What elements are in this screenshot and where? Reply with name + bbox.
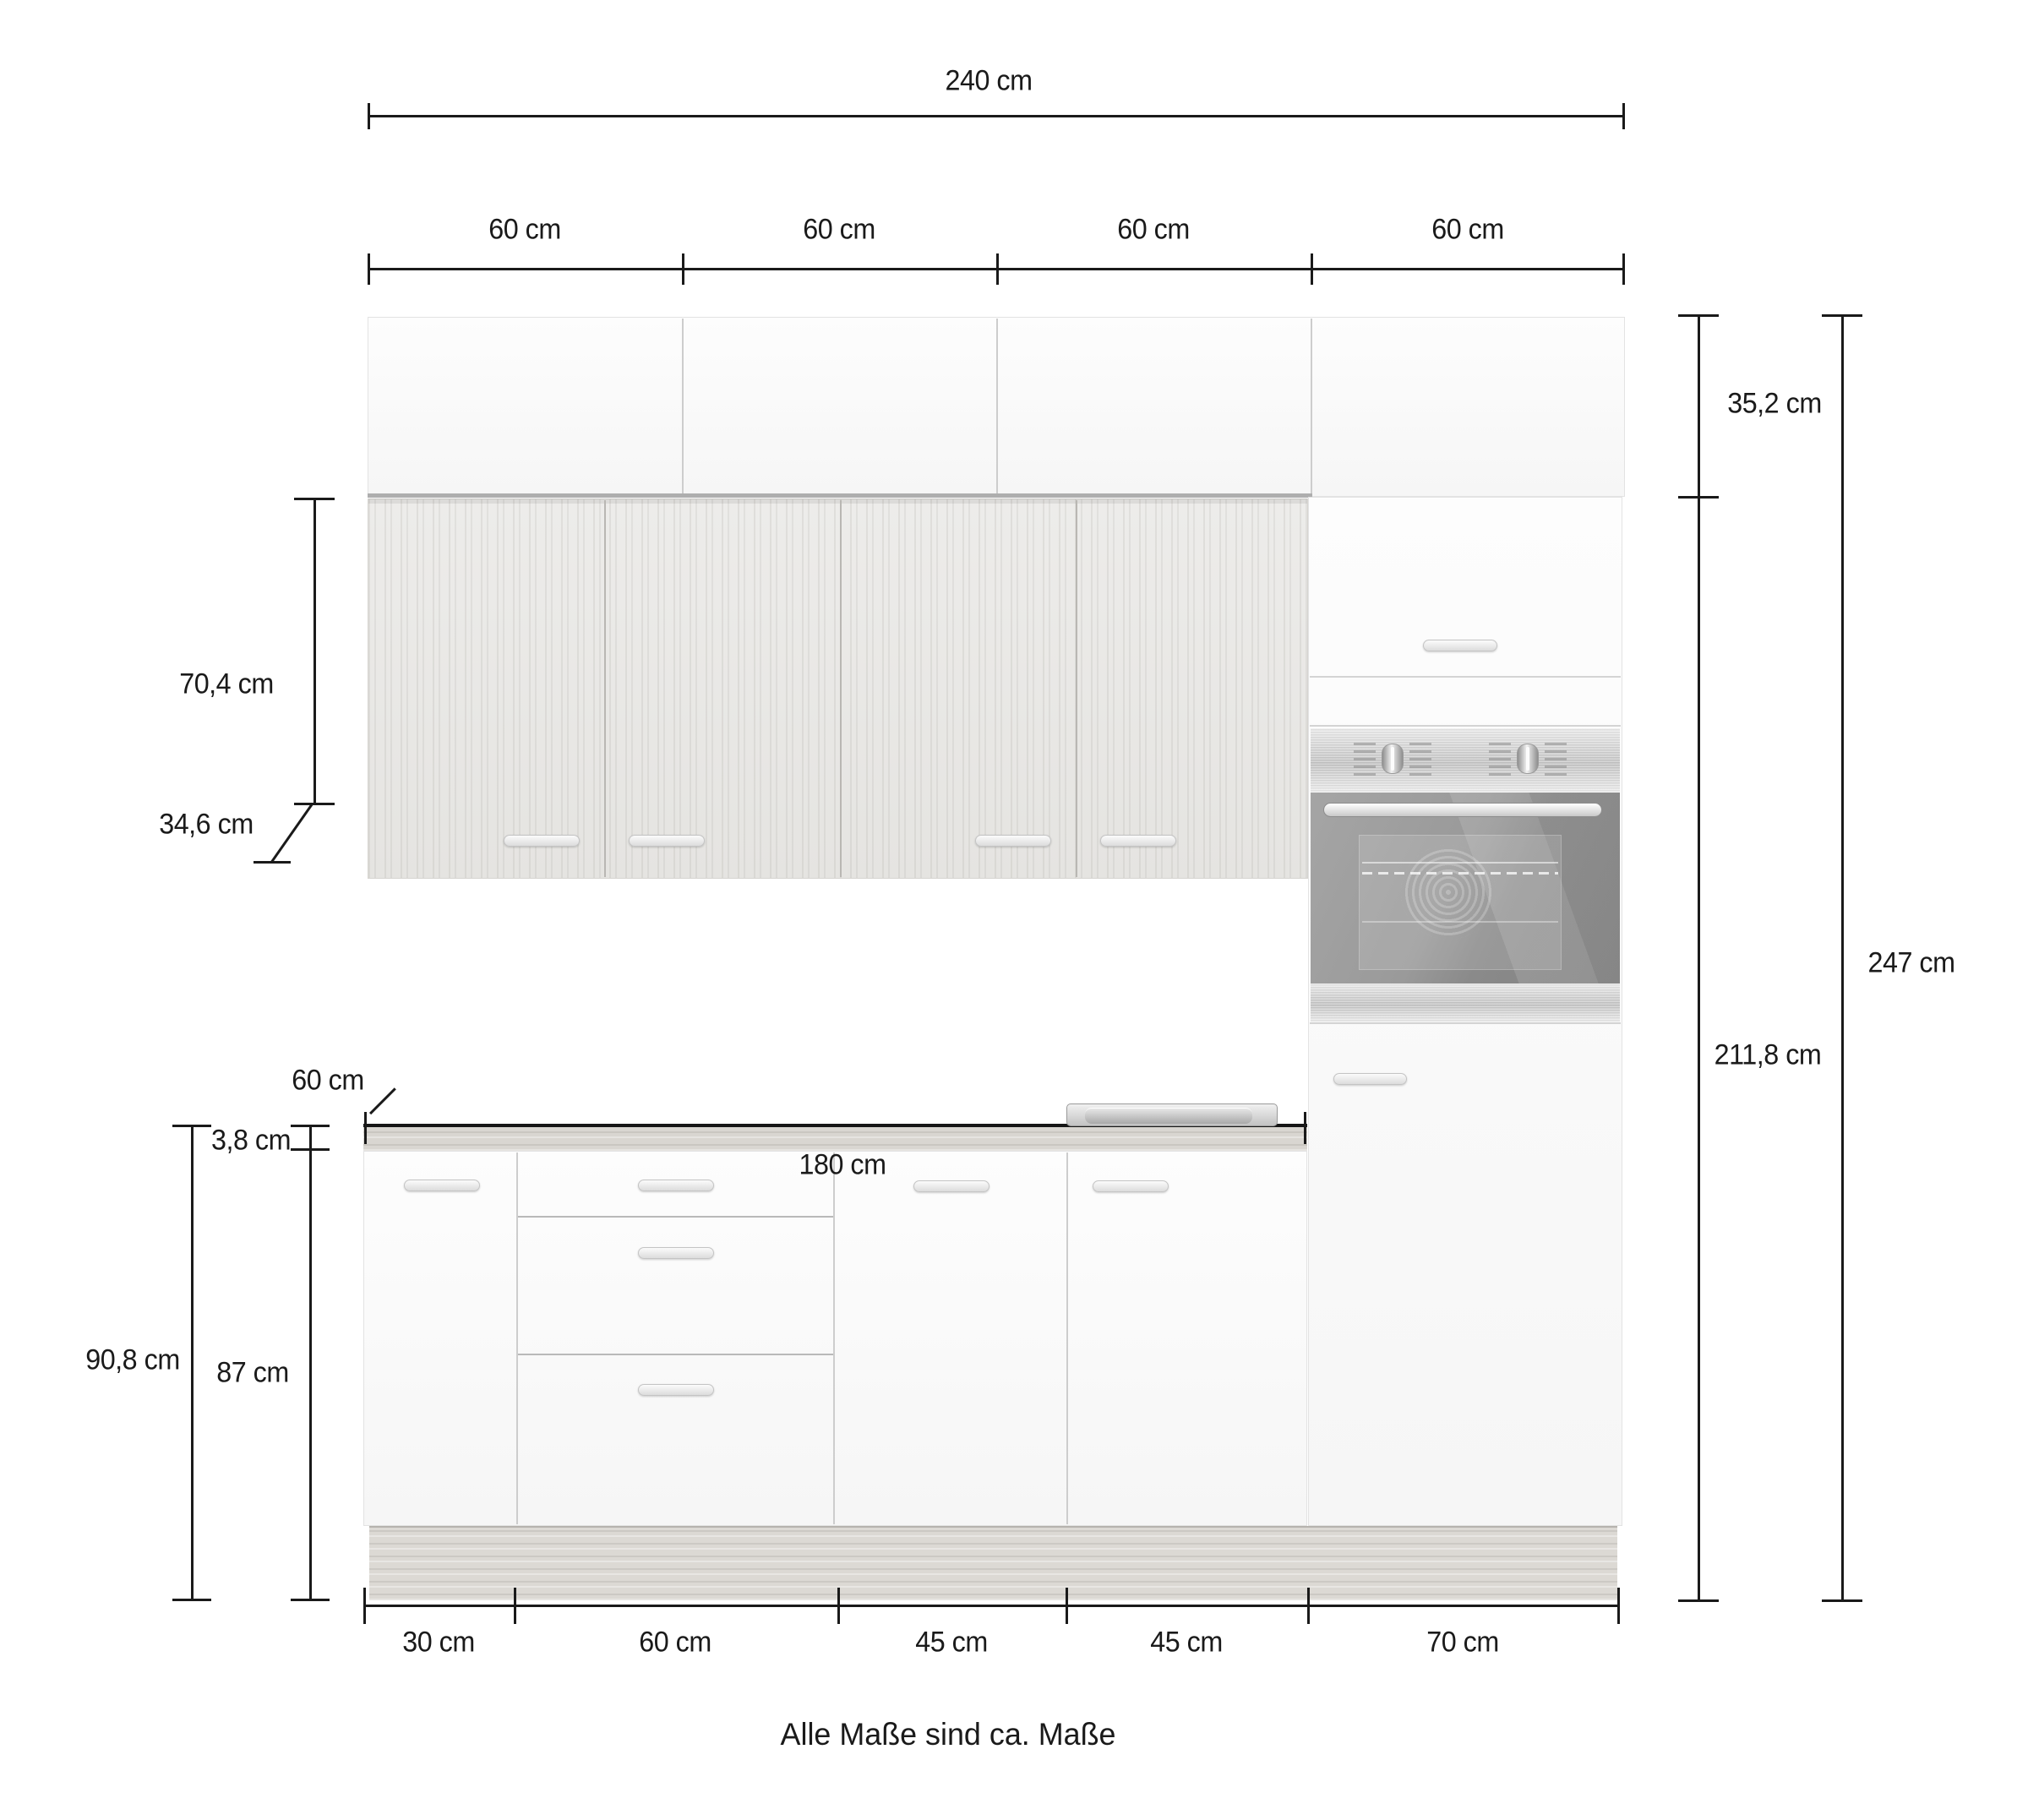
dim-line-right-outer (1841, 315, 1844, 1602)
tall-unit-seam (1310, 1022, 1621, 1024)
dim-tick (363, 1588, 366, 1624)
dim-tick (1622, 253, 1625, 285)
dim-tick (1822, 314, 1862, 317)
dim-tick (294, 498, 335, 500)
dim-tick (294, 803, 335, 805)
dim-tick (368, 103, 370, 129)
dim-tick (1311, 253, 1313, 285)
dim-tick (368, 253, 370, 285)
dim-label-wall-cabinet-height: 70,4 cm (179, 668, 274, 701)
base-door-handle (913, 1180, 989, 1192)
wall-cabinet-handle (1100, 835, 1176, 847)
dim-tick (253, 861, 291, 864)
dim-tick (1066, 1588, 1068, 1624)
dim-label-tall-column-height: 211,8 cm (1715, 1039, 1822, 1072)
oven-fan-rings (1401, 845, 1496, 940)
upper-cabinet-shadow (368, 493, 1312, 498)
dim-tick (996, 253, 999, 285)
dim-label-worktop-width: 180 cm (799, 1149, 886, 1182)
drawer-seam (518, 1216, 833, 1218)
oven-panel-icons (1354, 742, 1376, 776)
dim-label-upper-segment: 60 cm (488, 214, 561, 247)
sink-basin (1085, 1108, 1252, 1124)
dim-line-total-width (368, 115, 1625, 117)
dim-tick (291, 1125, 330, 1127)
oven-knob (1517, 744, 1539, 774)
dim-label-upper-segment: 60 cm (1431, 214, 1504, 247)
tall-unit-door-handle (1423, 640, 1497, 651)
drawer-handle (638, 1180, 714, 1191)
dim-label-base-total-height: 90,8 cm (85, 1344, 180, 1377)
upper-cabinet-seam (996, 319, 998, 495)
dim-tick (1307, 1588, 1310, 1624)
dim-tick (1678, 496, 1719, 499)
dim-label-base-segment: 70 cm (1426, 1627, 1499, 1659)
dim-label-base-segment: 60 cm (639, 1627, 711, 1659)
base-cabinet-run (363, 1151, 1307, 1526)
base-cabinet-seam (833, 1152, 835, 1524)
upper-cabinet-seam (682, 319, 684, 495)
dim-label-wall-cabinet-depth: 34,6 cm (159, 809, 253, 842)
wall-cabinet-seam (840, 500, 842, 877)
oven-knob (1382, 744, 1404, 774)
dim-tick (682, 253, 684, 285)
drawer-seam (518, 1354, 833, 1355)
worktop-end-tick (1304, 1112, 1306, 1144)
dim-label-base-segment: 45 cm (915, 1627, 988, 1659)
dim-diagonal-wall-depth (270, 803, 313, 863)
drawer-handle (638, 1247, 714, 1259)
dim-tick (291, 1599, 330, 1601)
dim-diagonal-worktop-depth (369, 1087, 396, 1114)
base-door-handle (404, 1180, 480, 1191)
dim-tick (1678, 1599, 1719, 1602)
worktop-end-tick (364, 1112, 367, 1144)
wall-cabinet-seam (604, 500, 606, 877)
dim-label-base-segment: 45 cm (1150, 1627, 1223, 1659)
oven-door-handle-bar (1323, 803, 1602, 817)
dim-line-base-cabinet-height (309, 1125, 312, 1601)
wall-cabinet-top-shadow (368, 499, 1307, 504)
worktop (363, 1124, 1307, 1151)
base-cabinet-seam (516, 1152, 518, 1524)
dim-line-base-total-height (191, 1125, 194, 1601)
dim-label-total-width: 240 cm (945, 65, 1032, 98)
dim-label-base-segment: 30 cm (402, 1627, 475, 1659)
footer-note: Alle Maße sind ca. Maße (781, 1717, 1116, 1752)
dim-label-upper-segment: 60 cm (1117, 214, 1190, 247)
tall-unit-seam (1310, 725, 1621, 727)
dim-label-upper-segment: 60 cm (803, 214, 875, 247)
wall-cabinet-handle (975, 835, 1051, 847)
oven-panel-icons (1409, 742, 1431, 776)
dim-tick (837, 1588, 840, 1624)
dim-line-wall-cabinet-height (313, 499, 316, 805)
dim-label-worktop-depth: 60 cm (292, 1065, 364, 1098)
dim-tick (1678, 314, 1719, 317)
base-cabinet-seam (1066, 1152, 1068, 1524)
dim-tick (1822, 1599, 1862, 1602)
plinth (369, 1526, 1617, 1600)
dim-tick (1617, 1588, 1620, 1624)
drawer-handle (638, 1384, 714, 1396)
dim-line-base-segments (363, 1605, 1620, 1607)
wall-cabinet-handle (629, 835, 705, 847)
dim-label-base-cabinet-height: 87 cm (216, 1357, 289, 1390)
dim-tick (514, 1588, 516, 1624)
wall-cabinet-run (368, 499, 1308, 879)
dim-tick (172, 1125, 211, 1127)
wall-cabinet-seam (1076, 500, 1077, 877)
dim-tick (172, 1599, 211, 1601)
dim-label-total-height: 247 cm (1867, 947, 1954, 980)
tall-unit-lower-door-handle (1333, 1073, 1407, 1085)
dim-label-upper-cabinet-height: 35,2 cm (1727, 388, 1822, 421)
oven-panel-icons (1545, 742, 1567, 776)
oven-lower-panel (1311, 984, 1620, 1022)
base-door-handle (1093, 1180, 1169, 1192)
kitchen-dimension-diagram: 240 cm 60 cm 60 cm 60 cm 60 cm 35,2 cm 2… (0, 0, 2028, 1820)
oven-panel-icons (1489, 742, 1511, 776)
upper-cabinet-seam (1311, 319, 1312, 495)
tall-unit-seam (1310, 676, 1621, 678)
wall-cabinet-handle (504, 835, 580, 847)
dim-tick (291, 1148, 330, 1151)
dim-tick (1622, 103, 1625, 129)
dim-label-worktop-thickness: 3,8 cm (211, 1125, 291, 1158)
dim-line-right-inner (1698, 315, 1700, 1602)
